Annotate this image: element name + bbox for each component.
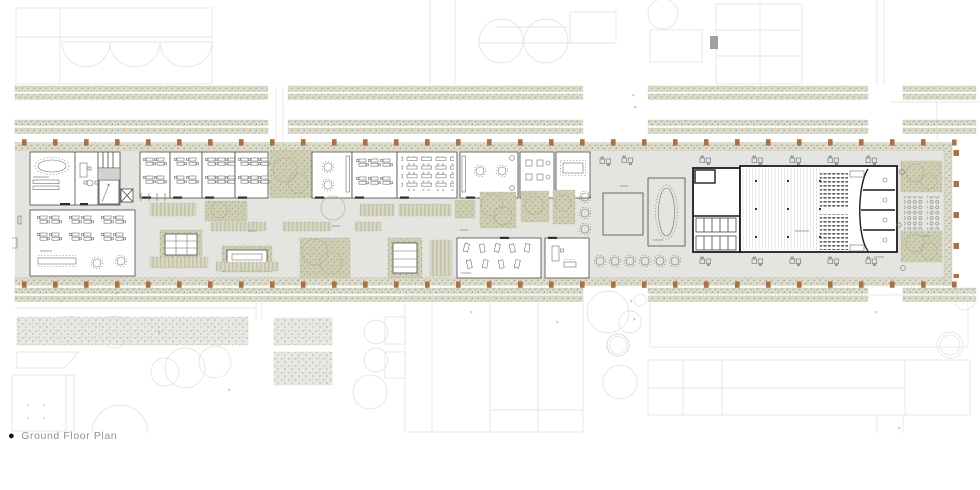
event-chairs xyxy=(927,196,941,230)
garden-plots-southwest xyxy=(12,316,332,433)
plant-mark xyxy=(634,106,636,108)
site-context-south xyxy=(12,288,976,433)
drawing-caption: ● Ground Floor Plan xyxy=(8,430,117,442)
timber-columns-east xyxy=(954,148,960,278)
plant-marks-south xyxy=(60,292,900,429)
timber-columns-north xyxy=(15,139,947,145)
neighbor-building-northwest xyxy=(16,8,212,84)
corner-column xyxy=(952,282,957,288)
hedgerow-north-inner xyxy=(15,120,976,134)
garden-pavilion xyxy=(160,230,202,259)
auditorium-hall xyxy=(740,166,897,257)
neighbor-building-northeast xyxy=(648,0,980,138)
building-hedge-east xyxy=(944,143,952,286)
lounge-room xyxy=(457,237,541,278)
desk xyxy=(80,163,87,177)
neighbor-building-north-middle xyxy=(430,0,616,84)
neighbor-building-southeast xyxy=(648,290,975,433)
seating-block xyxy=(820,171,848,208)
service-core xyxy=(693,168,740,252)
street-lines-north xyxy=(276,87,283,143)
garden-pavilion xyxy=(388,238,422,278)
event-chairs xyxy=(904,196,923,230)
main-building xyxy=(12,139,960,288)
seating-block xyxy=(820,214,848,250)
site-context-north xyxy=(15,0,980,143)
caption-bullet-icon: ● xyxy=(8,431,15,442)
plant-mark xyxy=(632,94,634,96)
caption-label: Ground Floor Plan xyxy=(21,430,117,442)
hedgerow-north-outer xyxy=(15,86,976,100)
timber-columns-south xyxy=(15,281,947,287)
floor-plan-drawing xyxy=(0,0,980,490)
media-room xyxy=(545,237,589,278)
floor-plan-sheet: ● Ground Floor Plan xyxy=(0,0,980,490)
open-office xyxy=(30,210,135,276)
neighbor-building-south-middle xyxy=(353,295,583,432)
curved-path xyxy=(92,405,148,433)
seminar-room xyxy=(460,152,518,198)
trees-south-center xyxy=(587,291,646,399)
corner-column xyxy=(952,140,957,146)
courtyard-garden xyxy=(270,150,312,198)
